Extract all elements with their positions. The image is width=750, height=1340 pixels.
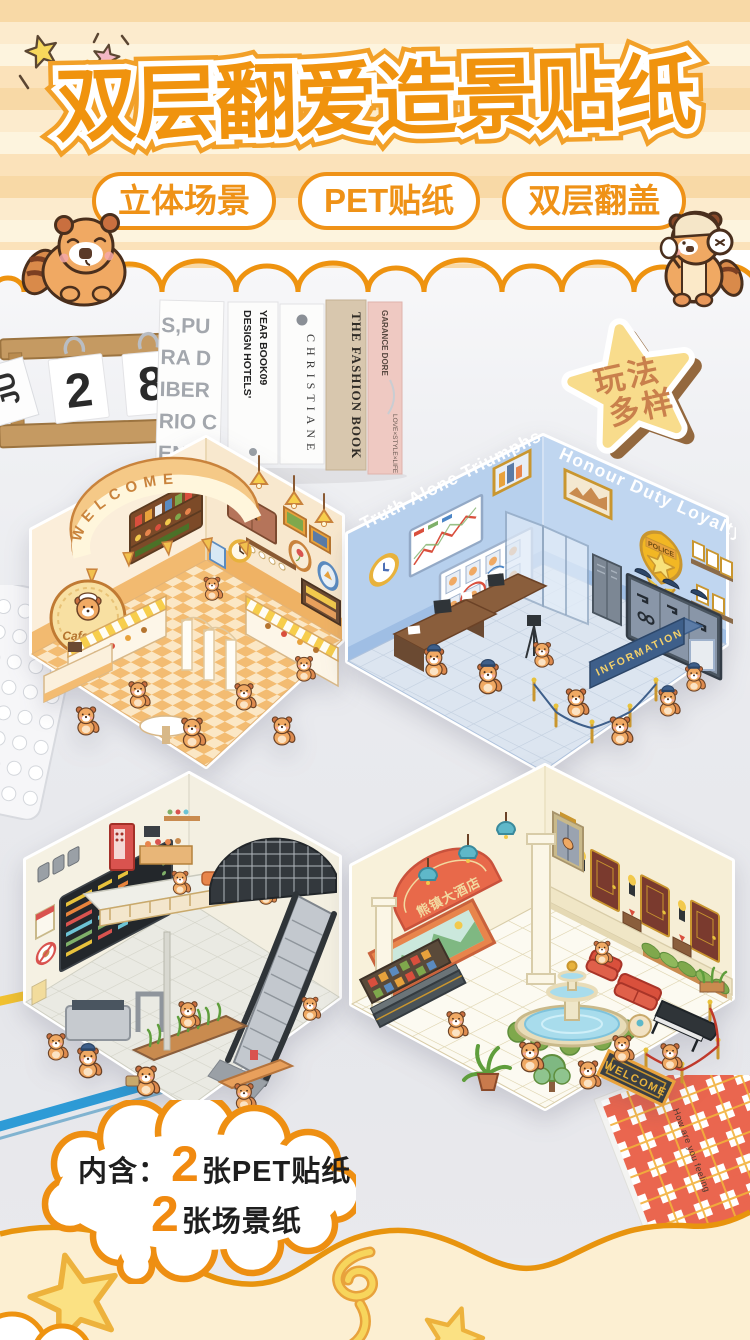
bubble-line-1: 内含：2张PET贴纸 (78, 1142, 351, 1190)
book-cover-line: IBER (159, 378, 210, 402)
red-panda-mascot-left (20, 208, 146, 308)
star-badge: 玩法 多样 (542, 318, 722, 464)
computer-monitor (487, 573, 504, 587)
bubble-item-pet: 张PET贴纸 (202, 1148, 351, 1190)
snack-counter (140, 846, 192, 864)
scene-police-sticker: Truth Alone Triumphs Honour Duty Loyalty (338, 426, 736, 780)
computer-monitor (433, 599, 451, 614)
suitcase-icon (126, 1076, 139, 1086)
product-promo-image: JU 2 8 S,PU RA D IBER RIO C ENCIA (0, 0, 750, 1340)
bubble-prefix: 内含： (78, 1148, 168, 1190)
bubble-count-scene: 2 (151, 1192, 179, 1237)
wall-shelf (164, 816, 200, 821)
calendar-month-card: JU (0, 357, 39, 427)
red-panda-mascot-right (644, 200, 748, 308)
microwave (144, 826, 160, 837)
scene-hotel-sticker: 熊镇大酒店 (340, 756, 742, 1124)
microphone-icon (661, 238, 677, 258)
cash-register (68, 642, 82, 652)
page-title: 双层翻爱造景贴纸 双层翻爱造景贴纸 双层翻爱造景贴纸 (0, 54, 750, 166)
scene-cafeteria-sticker: WELCOME Cafeteria (16, 430, 348, 774)
welcome-doormat: WELCOME (598, 1051, 674, 1105)
bubble-line-2: 2张场景纸 (148, 1192, 302, 1240)
support-column (164, 932, 170, 1050)
feature-badges: 立体场景 PET贴纸 双层翻盖 (92, 172, 686, 230)
bubble-item-scene: 张场景纸 (182, 1198, 302, 1240)
scene-metro-sticker (14, 762, 349, 1117)
book-cover-line: RA D (160, 346, 211, 370)
badge-pet-sticker: PET贴纸 (298, 172, 480, 230)
bubble-count-pet: 2 (171, 1142, 199, 1187)
